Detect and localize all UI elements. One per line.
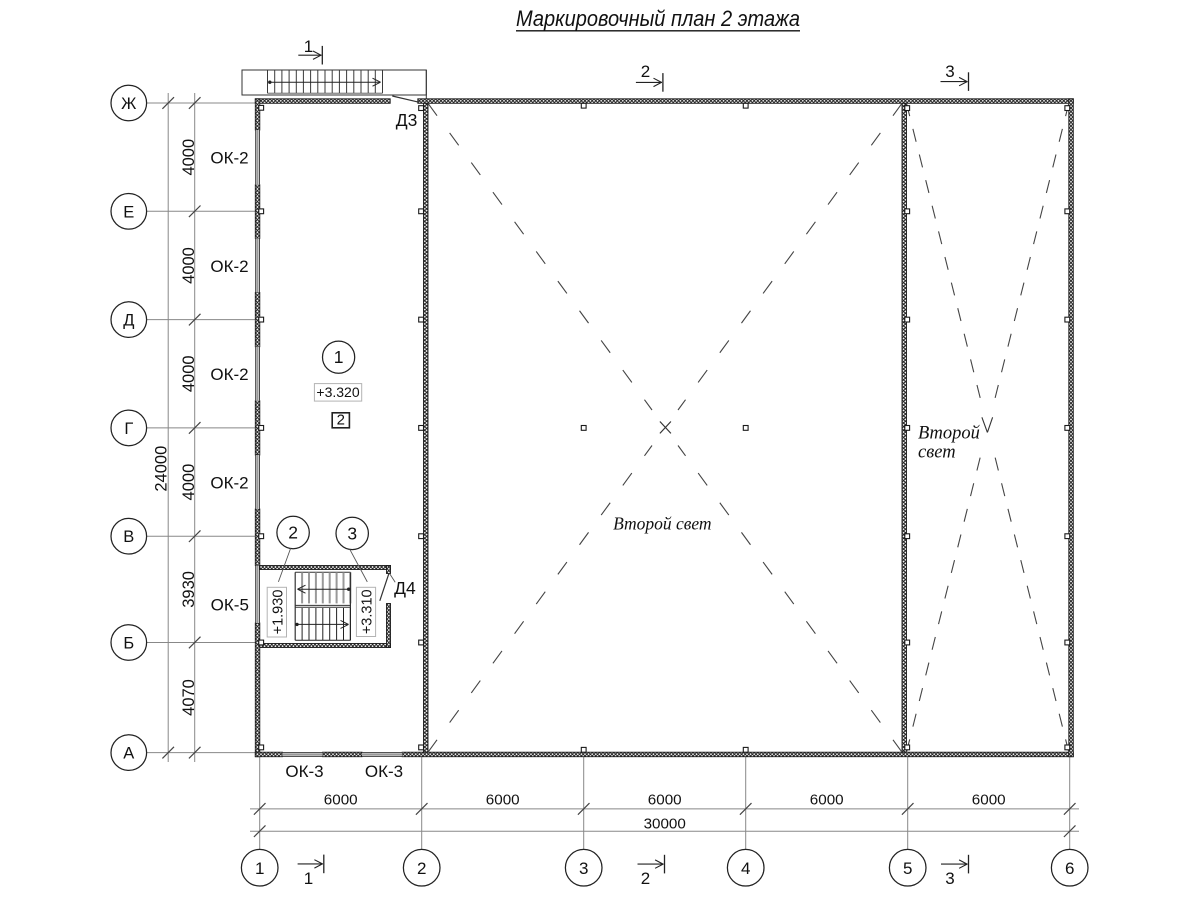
svg-text:6000: 6000 (324, 791, 358, 808)
svg-text:6: 6 (1065, 859, 1074, 878)
svg-text:30000: 30000 (644, 816, 686, 833)
svg-text:Е: Е (123, 203, 134, 221)
svg-text:2: 2 (641, 62, 650, 81)
svg-text:1: 1 (304, 869, 313, 888)
svg-text:свет: свет (918, 442, 956, 462)
svg-text:4000: 4000 (180, 464, 198, 501)
svg-text:5: 5 (903, 859, 912, 878)
svg-text:6000: 6000 (648, 791, 682, 808)
svg-text:ОК-2: ОК-2 (210, 149, 248, 168)
svg-text:3930: 3930 (180, 571, 198, 608)
svg-text:Д4: Д4 (394, 578, 416, 598)
svg-text:ОК-2: ОК-2 (210, 257, 248, 276)
svg-text:2: 2 (641, 869, 650, 888)
svg-text:ОК-3: ОК-3 (365, 762, 403, 781)
svg-text:Ж: Ж (121, 95, 137, 113)
svg-text:Б: Б (123, 635, 134, 653)
svg-text:2: 2 (337, 412, 345, 429)
svg-text:Д: Д (123, 312, 134, 330)
svg-text:2: 2 (288, 523, 298, 543)
svg-text:Д3: Д3 (396, 110, 418, 130)
svg-text:Маркировочный план 2 этажа: Маркировочный план 2 этажа (516, 6, 800, 31)
svg-text:Второй свет: Второй свет (613, 514, 711, 534)
svg-text:24000: 24000 (153, 446, 171, 492)
svg-text:ОК-5: ОК-5 (211, 596, 249, 615)
svg-text:3: 3 (347, 523, 357, 543)
svg-text:ОК-2: ОК-2 (210, 473, 248, 492)
svg-text:4000: 4000 (180, 355, 198, 392)
svg-text:+1.930: +1.930 (270, 590, 286, 635)
svg-text:3: 3 (579, 859, 588, 878)
svg-text:2: 2 (417, 859, 426, 878)
svg-text:4000: 4000 (180, 139, 198, 176)
svg-text:1: 1 (255, 859, 264, 878)
svg-text:+3.320: +3.320 (316, 384, 359, 400)
svg-text:ОК-3: ОК-3 (285, 762, 323, 781)
svg-text:4070: 4070 (180, 679, 198, 716)
svg-text:3: 3 (945, 869, 954, 888)
svg-text:6000: 6000 (486, 791, 520, 808)
svg-text:6000: 6000 (810, 791, 844, 808)
svg-text:4000: 4000 (180, 247, 198, 284)
svg-text:А: А (123, 745, 134, 763)
svg-text:Г: Г (124, 420, 133, 438)
svg-text:+3.310: +3.310 (360, 589, 376, 634)
svg-text:В: В (123, 528, 134, 546)
svg-text:ОК-2: ОК-2 (210, 365, 248, 384)
svg-text:4: 4 (741, 859, 750, 878)
svg-text:6000: 6000 (972, 791, 1006, 808)
svg-text:3: 3 (945, 62, 954, 81)
svg-text:1: 1 (304, 37, 313, 56)
svg-text:1: 1 (334, 347, 344, 367)
svg-text:Второй: Второй (918, 423, 981, 443)
